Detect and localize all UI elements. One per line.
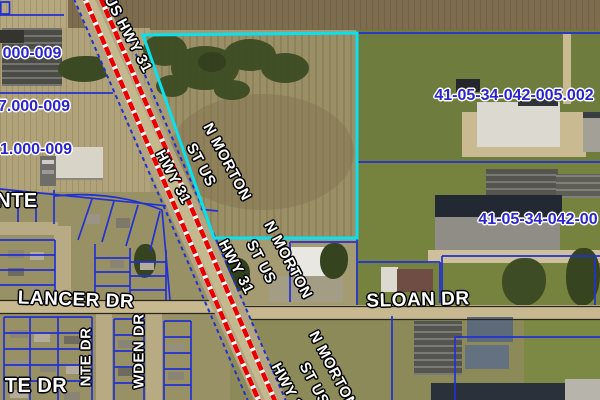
parcel-id-right-top: 41-05-34-042-005.002: [434, 88, 593, 104]
parcel-id-right-mid: 41-05-34-042-00: [478, 212, 597, 228]
street-label-sloan-dr: SLOAN DR: [366, 289, 470, 311]
street-label-wden-dr: WDEN DR: [132, 313, 147, 388]
street-label-lancer-dr: LANCER DR: [18, 288, 135, 311]
parcel-id-left-top: 000-009: [3, 46, 62, 62]
street-label-te-dr: TE DR: [5, 376, 68, 396]
parcel-id-left-mid: 7.000-009: [0, 99, 70, 115]
gis-map-viewport[interactable]: US HWY 31 HWY 31 ST US N MORTON HWY 31 S…: [0, 0, 600, 400]
street-label-nte: NTE: [0, 191, 38, 211]
street-label-nte-dr: NTE DR: [79, 328, 94, 387]
parcel-id-left-bottom: 1.000-009: [0, 142, 72, 158]
